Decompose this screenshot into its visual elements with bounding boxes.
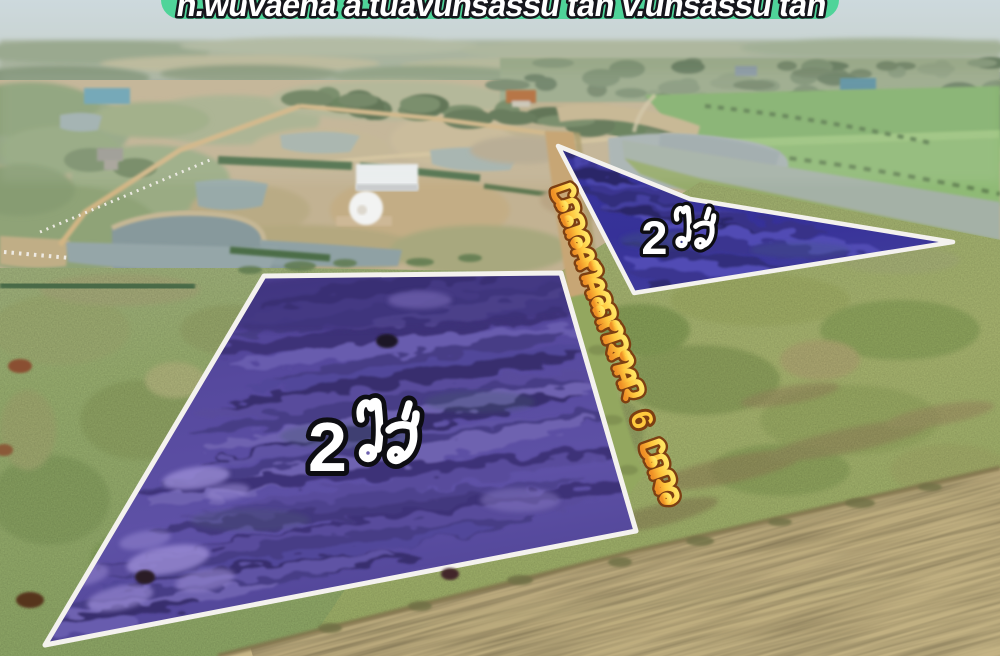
svg-text:2: 2	[641, 212, 667, 264]
svg-text:n.wuvaena a.tuavunsassu tan v.: n.wuvaena a.tuavunsassu tan v.unsassu ta…	[174, 0, 830, 24]
svg-text:2: 2	[308, 408, 347, 486]
